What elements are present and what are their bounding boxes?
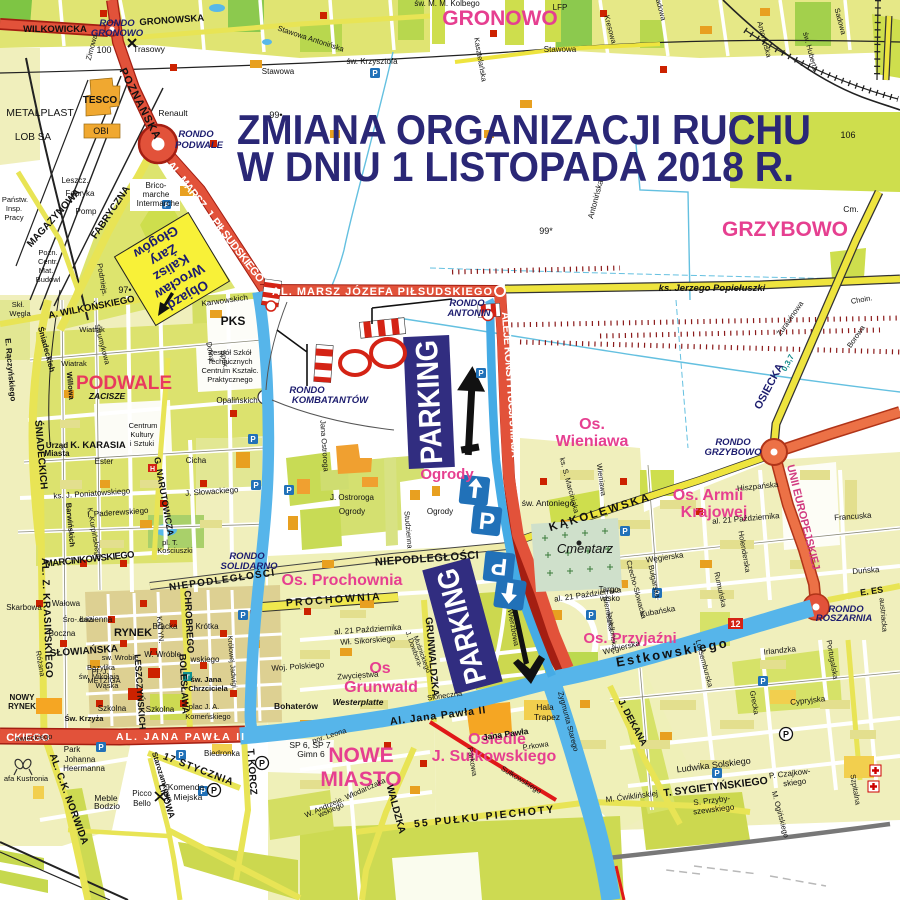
svg-text:św. M. M. Kolbego: św. M. M. Kolbego xyxy=(414,0,480,8)
svg-text:marche: marche xyxy=(143,190,170,199)
svg-text:Krótka: Krótka xyxy=(195,622,219,631)
svg-text:Cicha: Cicha xyxy=(186,456,207,465)
svg-text:NOWE: NOWE xyxy=(328,744,393,767)
svg-text:Śro-.dnia: Śro-.dnia xyxy=(63,615,94,624)
svg-text:P: P xyxy=(622,527,628,536)
svg-text:K. KARASIA: K. KARASIA xyxy=(70,440,126,451)
svg-text:P: P xyxy=(588,611,594,620)
svg-text:Miasta: Miasta xyxy=(45,449,70,458)
svg-text:Gimn 6: Gimn 6 xyxy=(297,749,325,759)
svg-text:P: P xyxy=(783,730,789,740)
svg-text:Komenda: Komenda xyxy=(168,782,205,792)
svg-text:Pozn.: Pozn. xyxy=(38,248,57,257)
svg-text:Leszcz.: Leszcz. xyxy=(61,176,88,185)
svg-text:P: P xyxy=(478,369,484,378)
svg-text:W. Wróble-: W. Wróble- xyxy=(144,650,184,659)
svg-text:GRONOWO: GRONOWO xyxy=(442,7,558,30)
svg-text:P: P xyxy=(250,435,256,444)
svg-text:KOMBATANTÓW: KOMBATANTÓW xyxy=(292,394,369,406)
svg-text:P: P xyxy=(372,69,378,78)
svg-text:Biedronka: Biedronka xyxy=(204,749,241,758)
svg-text:Kultury: Kultury xyxy=(130,430,154,439)
svg-text:ROSZARNIA: ROSZARNIA xyxy=(816,613,873,624)
svg-text:METZIGA: METZIGA xyxy=(87,676,120,685)
svg-text:PKS: PKS xyxy=(221,314,246,328)
svg-text:Bello: Bello xyxy=(133,799,151,808)
svg-text:św. Krzysztofa: św. Krzysztofa xyxy=(346,57,398,66)
svg-text:Picco: Picco xyxy=(132,789,152,798)
svg-text:Targo-: Targo- xyxy=(599,585,622,594)
svg-text:ANTONIN: ANTONIN xyxy=(446,308,491,319)
svg-text:P: P xyxy=(211,786,217,796)
svg-text:i Sztuki: i Sztuki xyxy=(130,439,155,448)
svg-text:RYNEK: RYNEK xyxy=(114,627,152,639)
svg-text:P: P xyxy=(259,759,265,769)
svg-text:AL. JANA PAWŁA II: AL. JANA PAWŁA II xyxy=(116,731,244,743)
svg-text:Cmentarz: Cmentarz xyxy=(557,541,614,556)
svg-text:J. Sułkowskiego: J. Sułkowskiego xyxy=(432,748,557,765)
svg-text:P: P xyxy=(478,508,497,537)
svg-text:Heermanna: Heermanna xyxy=(63,764,105,773)
svg-text:LFP: LFP xyxy=(553,3,568,12)
svg-text:RONDO: RONDO xyxy=(178,129,214,140)
svg-text:P: P xyxy=(714,769,720,778)
svg-text:plac J. A.: plac J. A. xyxy=(189,702,219,711)
svg-text:Trasowy: Trasowy xyxy=(133,44,166,54)
svg-text:Wieniawa: Wieniawa xyxy=(556,433,629,450)
svg-text:Bodzio: Bodzio xyxy=(94,801,120,811)
svg-text:Fabryka: Fabryka xyxy=(66,189,95,198)
svg-text:Ogrody: Ogrody xyxy=(420,466,474,483)
svg-text:P: P xyxy=(286,486,292,495)
svg-text:PODWALE: PODWALE xyxy=(175,140,224,151)
svg-text:P: P xyxy=(253,481,259,490)
svg-text:Duńska: Duńska xyxy=(852,565,880,576)
svg-text:Cm.: Cm. xyxy=(843,204,859,214)
svg-text:Ogrody: Ogrody xyxy=(427,507,453,516)
svg-text:Ogrody: Ogrody xyxy=(339,507,365,516)
svg-text:wskiego: wskiego xyxy=(190,655,220,664)
svg-text:PARKING: PARKING xyxy=(409,339,449,464)
svg-text:Park: Park xyxy=(64,745,81,754)
svg-text:Westerplatte: Westerplatte xyxy=(333,697,384,707)
svg-text:Grunwald: Grunwald xyxy=(344,679,418,696)
svg-text:Pł. J.: Pł. J. xyxy=(92,667,109,676)
svg-text:OBI: OBI xyxy=(93,126,109,136)
svg-text:ZACISZE: ZACISZE xyxy=(88,391,126,401)
svg-text:97•: 97• xyxy=(118,285,131,295)
svg-text:wisko: wisko xyxy=(599,594,621,603)
svg-text:sw. Wrobie: sw. Wrobie xyxy=(102,653,139,662)
svg-text:Św. Krzyża: Św. Krzyża xyxy=(65,714,105,723)
svg-text:Szkolna: Szkolna xyxy=(146,705,175,714)
svg-text:afa Kustronia: afa Kustronia xyxy=(4,774,49,783)
svg-text:Budowl: Budowl xyxy=(36,275,61,284)
svg-text:Chrzciciela: Chrzciciela xyxy=(188,684,228,693)
svg-text:99*: 99* xyxy=(539,226,553,236)
svg-text:LOB SA: LOB SA xyxy=(15,132,51,143)
svg-text:Insp.: Insp. xyxy=(6,204,22,213)
svg-text:Pracy: Pracy xyxy=(4,213,23,222)
svg-text:Skł.: Skł. xyxy=(12,300,25,309)
svg-text:Trapez: Trapez xyxy=(534,712,560,722)
svg-text:Szkolna: Szkolna xyxy=(98,704,127,713)
svg-text:P: P xyxy=(98,743,104,752)
svg-text:Praktycznego: Praktycznego xyxy=(207,375,252,384)
svg-text:106: 106 xyxy=(840,130,855,140)
svg-text:Os.: Os. xyxy=(579,416,605,433)
svg-text:H: H xyxy=(150,466,155,473)
svg-text:GRZYBOWO: GRZYBOWO xyxy=(705,447,763,458)
svg-text:Bohaterów: Bohaterów xyxy=(274,701,318,711)
svg-text:św. Jana: św. Jana xyxy=(191,675,223,684)
svg-text:Johanna: Johanna xyxy=(65,755,96,764)
svg-text:Centrum: Centrum xyxy=(129,421,158,430)
svg-text:METALPLAST: METALPLAST xyxy=(6,107,74,119)
svg-text:św. Antoniego: św. Antoniego xyxy=(522,498,575,508)
svg-text:Centr.: Centr. xyxy=(38,257,58,266)
svg-text:J. Ostroroga: J. Ostroroga xyxy=(330,493,375,502)
svg-text:AL. MARSZ JÓZEFA PIŁSUDSKIEGO: AL. MARSZ JÓZEFA PIŁSUDSKIEGO xyxy=(272,285,492,298)
svg-text:Boczna: Boczna xyxy=(49,629,76,638)
svg-text:Węgla: Węgla xyxy=(9,309,31,318)
svg-text:ks. Jerzego Popiełuszki: ks. Jerzego Popiełuszki xyxy=(659,283,766,294)
svg-text:Stawowa: Stawowa xyxy=(262,67,295,76)
svg-text:TESCO: TESCO xyxy=(83,95,118,106)
svg-text:Pomp: Pomp xyxy=(76,207,97,216)
svg-text:12: 12 xyxy=(730,619,740,629)
svg-text:RYNEK: RYNEK xyxy=(8,702,36,711)
svg-text:NOWY: NOWY xyxy=(10,693,36,702)
svg-text:Os. Prochownia: Os. Prochownia xyxy=(282,572,403,589)
svg-text:Os. Armii: Os. Armii xyxy=(673,487,744,504)
svg-text:Wałowa: Wałowa xyxy=(52,599,81,608)
svg-text:Kościuszki: Kościuszki xyxy=(157,546,193,555)
svg-text:Brico-: Brico- xyxy=(146,181,167,190)
svg-text:99•: 99• xyxy=(269,110,282,120)
svg-text:Hala: Hala xyxy=(536,702,554,712)
svg-text:Miejska: Miejska xyxy=(174,792,203,802)
svg-text:GRZYBOWO: GRZYBOWO xyxy=(722,218,848,241)
svg-text:Państw.: Państw. xyxy=(2,195,28,204)
svg-text:Mat.: Mat. xyxy=(39,266,54,275)
svg-text:P: P xyxy=(760,677,766,686)
svg-text:Renault: Renault xyxy=(158,108,188,118)
svg-text:100: 100 xyxy=(96,45,111,55)
svg-text:WILKOWICKA: WILKOWICKA xyxy=(23,24,87,35)
svg-text:P: P xyxy=(490,552,509,581)
svg-text:Wiatrak: Wiatrak xyxy=(61,359,87,368)
svg-text:Komeńskiego: Komeńskiego xyxy=(185,712,230,721)
svg-text:Stawowa: Stawowa xyxy=(544,45,577,54)
svg-text:W DNIU 1 LISTOPADA 2018 R.: W DNIU 1 LISTOPADA 2018 R. xyxy=(237,143,794,190)
svg-text:Opalińskich: Opalińskich xyxy=(216,396,257,405)
svg-text:Skarbowa: Skarbowa xyxy=(6,603,42,612)
svg-text:Intermarche: Intermarche xyxy=(137,199,180,208)
svg-text:P: P xyxy=(240,611,246,620)
svg-text:Ester: Ester xyxy=(95,457,114,466)
